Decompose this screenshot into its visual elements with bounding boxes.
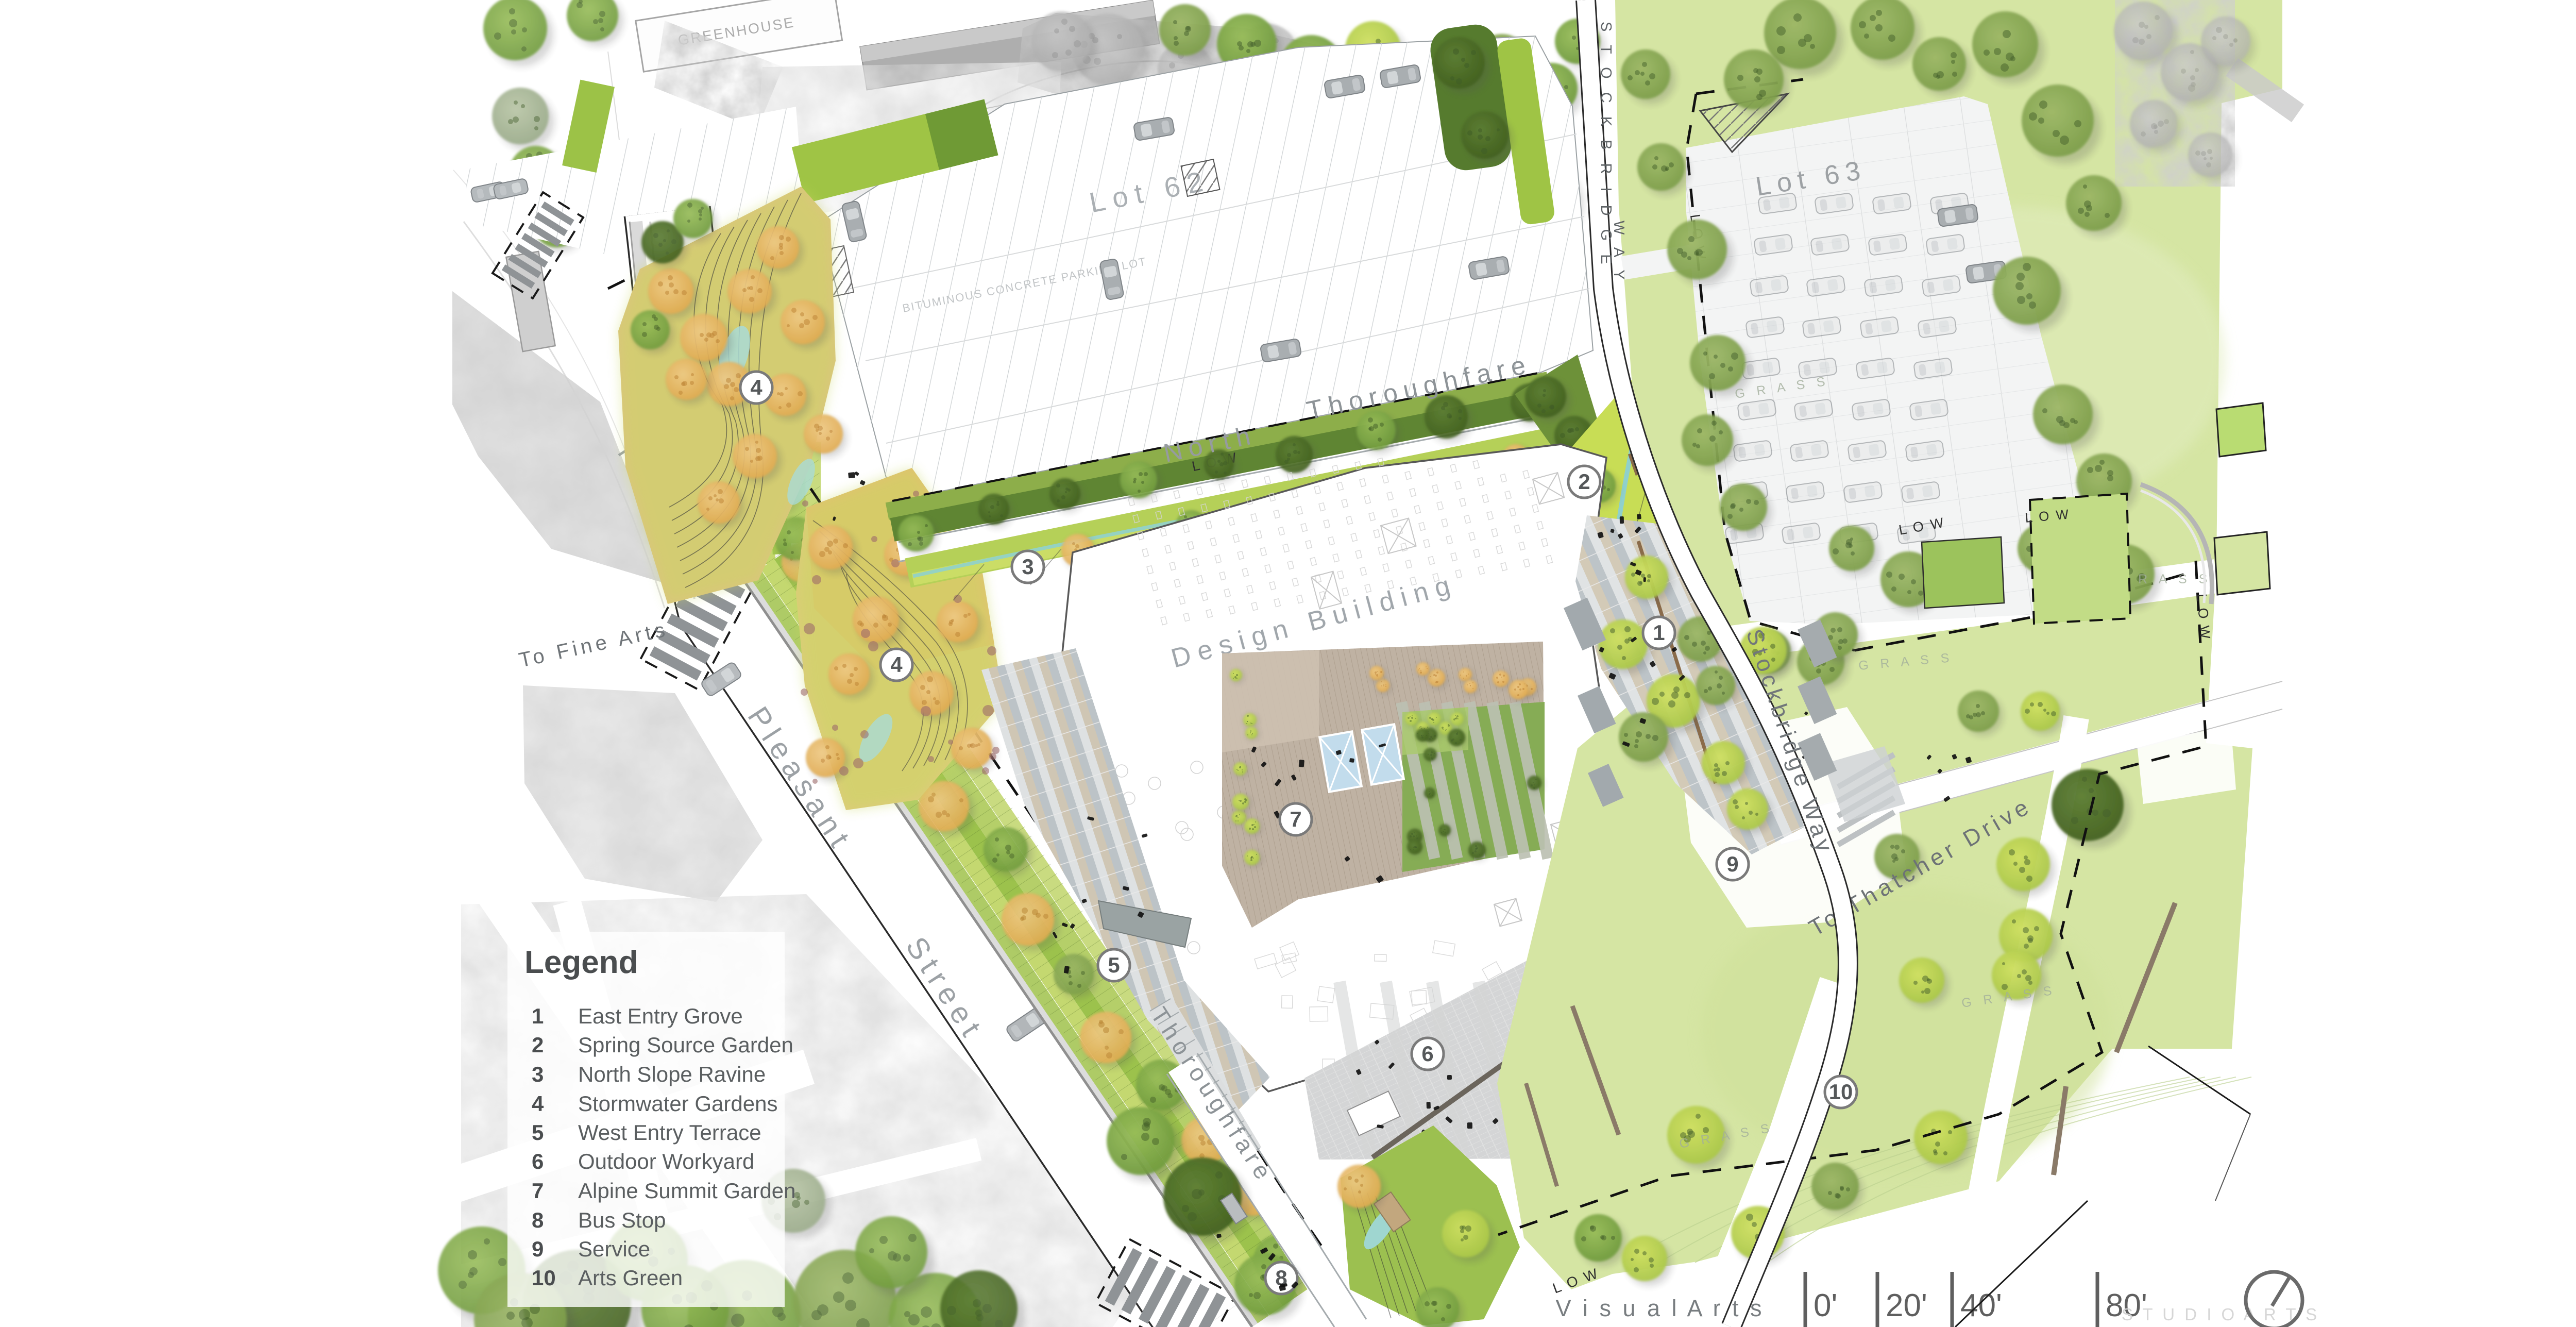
svg-text:Outdoor Workyard: Outdoor Workyard <box>578 1149 754 1173</box>
svg-text:Spring Source Garden: Spring Source Garden <box>578 1033 793 1057</box>
svg-text:1: 1 <box>1653 620 1665 645</box>
svg-text:6: 6 <box>1421 1042 1433 1066</box>
svg-text:Arts Green: Arts Green <box>578 1266 683 1290</box>
svg-text:3: 3 <box>532 1062 544 1086</box>
svg-text:4: 4 <box>532 1091 544 1116</box>
svg-text:6: 6 <box>532 1149 544 1173</box>
svg-text:5: 5 <box>1108 953 1120 977</box>
svg-text:Service: Service <box>578 1237 650 1261</box>
svg-text:2: 2 <box>532 1033 544 1057</box>
svg-text:S T U D I O A R T S: S T U D I O A R T S <box>2122 1305 2319 1324</box>
svg-text:Alpine Summit Garden: Alpine Summit Garden <box>578 1179 796 1203</box>
svg-text:East Entry Grove: East Entry Grove <box>578 1004 743 1028</box>
svg-text:9: 9 <box>1726 852 1738 876</box>
svg-text:0': 0' <box>1814 1288 1837 1323</box>
svg-text:1: 1 <box>532 1004 544 1028</box>
svg-text:7: 7 <box>1290 807 1301 831</box>
svg-text:4: 4 <box>890 652 903 677</box>
svg-text:40': 40' <box>1960 1288 2002 1323</box>
svg-text:North Slope Ravine: North Slope Ravine <box>578 1062 766 1086</box>
svg-text:3: 3 <box>1022 555 1033 579</box>
svg-text:20': 20' <box>1886 1288 1927 1323</box>
svg-text:10: 10 <box>1829 1080 1853 1104</box>
svg-text:7: 7 <box>532 1179 544 1203</box>
svg-text:10: 10 <box>532 1266 556 1290</box>
svg-text:8: 8 <box>532 1208 544 1232</box>
svg-text:West Entry Terrace: West Entry Terrace <box>578 1120 761 1145</box>
svg-text:G R A S S: G R A S S <box>2116 572 2212 586</box>
svg-text:9: 9 <box>532 1237 544 1261</box>
svg-text:V i s u a l A r t s: V i s u a l A r t s <box>1555 1295 1764 1321</box>
svg-text:4: 4 <box>750 375 762 399</box>
svg-text:W A Y: W A Y <box>1611 221 1627 284</box>
svg-text:5: 5 <box>532 1120 544 1145</box>
svg-text:Legend: Legend <box>524 945 638 980</box>
svg-text:Bus Stop: Bus Stop <box>578 1208 666 1232</box>
svg-text:2: 2 <box>1578 469 1590 494</box>
svg-text:Stormwater Gardens: Stormwater Gardens <box>578 1091 777 1116</box>
